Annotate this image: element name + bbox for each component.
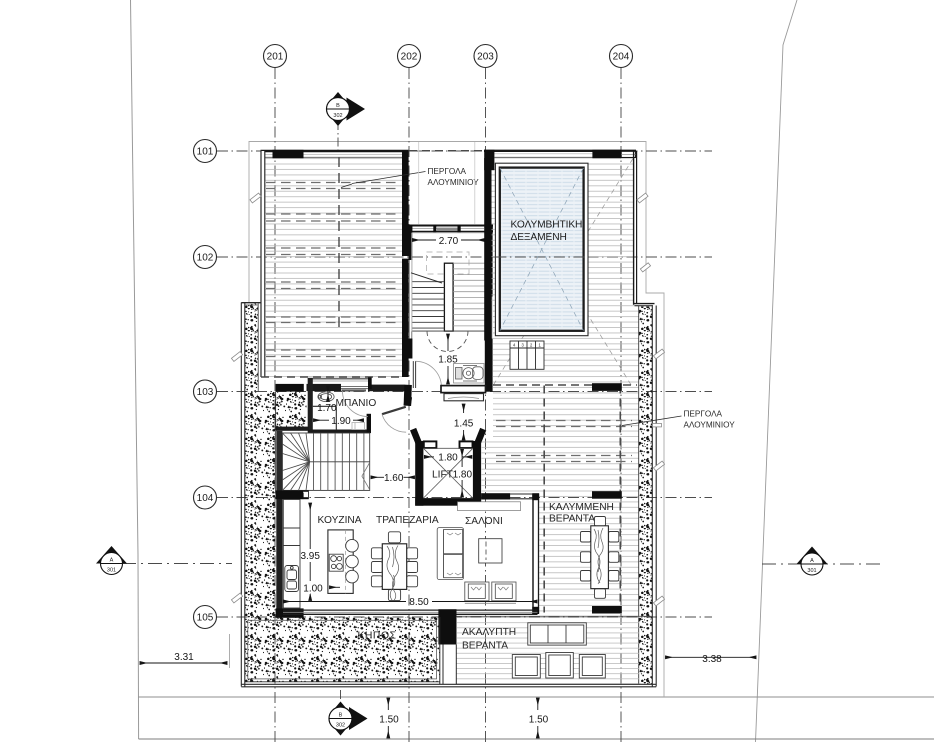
svg-text:1.60: 1.60 <box>384 473 404 484</box>
svg-text:LIFT: LIFT <box>432 470 453 481</box>
svg-text:101: 101 <box>197 147 214 158</box>
svg-text:103: 103 <box>197 387 214 398</box>
svg-text:1.45: 1.45 <box>454 418 474 429</box>
svg-text:ΠΕΡΓΟΛΑ: ΠΕΡΓΟΛΑ <box>684 410 723 419</box>
svg-text:ΠΕΡΓΟΛΑ: ΠΕΡΓΟΛΑ <box>428 167 467 176</box>
svg-text:1.50: 1.50 <box>529 714 549 725</box>
svg-text:301: 301 <box>807 568 816 574</box>
svg-text:ΜΠΑΝΙΟ: ΜΠΑΝΙΟ <box>336 398 377 409</box>
svg-text:1.80: 1.80 <box>453 470 473 481</box>
svg-text:A: A <box>810 558 814 564</box>
svg-text:ΣΑΛΟΝΙ: ΣΑΛΟΝΙ <box>465 516 503 527</box>
svg-text:3.95: 3.95 <box>300 551 320 562</box>
svg-text:202: 202 <box>401 52 418 63</box>
svg-text:ΑΛΟΥΜΙΝΙΟΥ: ΑΛΟΥΜΙΝΙΟΥ <box>428 178 480 187</box>
svg-text:ΤΡΑΠΕΖΑΡΙΑ: ΤΡΑΠΕΖΑΡΙΑ <box>376 515 439 526</box>
svg-text:3.38: 3.38 <box>702 654 722 665</box>
svg-text:ΚΟΥΖΙΝΑ: ΚΟΥΖΙΝΑ <box>318 515 362 526</box>
svg-text:1.50: 1.50 <box>379 714 399 725</box>
svg-text:ΑΛΟΥΜΙΝΙΟΥ: ΑΛΟΥΜΙΝΙΟΥ <box>684 421 736 430</box>
svg-text:203: 203 <box>477 52 494 63</box>
svg-text:302: 302 <box>333 113 342 119</box>
svg-text:2.70: 2.70 <box>439 236 459 247</box>
svg-text:ΚΑΛΥΜΜΕΝΗ: ΚΑΛΥΜΜΕΝΗ <box>549 502 614 513</box>
svg-text:105: 105 <box>197 613 214 624</box>
svg-text:302: 302 <box>336 723 345 729</box>
svg-text:1.70: 1.70 <box>317 403 337 414</box>
svg-text:301: 301 <box>107 568 116 574</box>
svg-text:8.50: 8.50 <box>409 597 429 608</box>
svg-text:ΔΕΞΑΜΕΝΗ: ΔΕΞΑΜΕΝΗ <box>511 232 567 243</box>
svg-text:1.90: 1.90 <box>331 416 351 427</box>
svg-text:3.31: 3.31 <box>174 652 194 663</box>
svg-text:104: 104 <box>197 493 214 504</box>
svg-text:ΒΕΡΑΝΤΑ: ΒΕΡΑΝΤΑ <box>462 641 508 652</box>
svg-text:ΚΗΠΟΣ: ΚΗΠΟΣ <box>358 631 397 642</box>
svg-text:A: A <box>110 558 114 564</box>
svg-text:102: 102 <box>197 253 214 264</box>
svg-text:ΚΟΛΥΜΒΗΤΙΚΗ: ΚΟΛΥΜΒΗΤΙΚΗ <box>511 220 583 231</box>
svg-text:ΑΚΑΛΥΠΤΗ: ΑΚΑΛΥΠΤΗ <box>462 627 516 638</box>
svg-text:201: 201 <box>267 52 284 63</box>
svg-text:204: 204 <box>613 52 630 63</box>
svg-text:ΒΕΡΑΝΤΑ: ΒΕΡΑΝΤΑ <box>549 514 595 525</box>
svg-text:B: B <box>339 713 343 719</box>
svg-text:1.80: 1.80 <box>438 453 458 464</box>
svg-text:1.00: 1.00 <box>303 583 323 594</box>
svg-text:B: B <box>336 103 340 109</box>
